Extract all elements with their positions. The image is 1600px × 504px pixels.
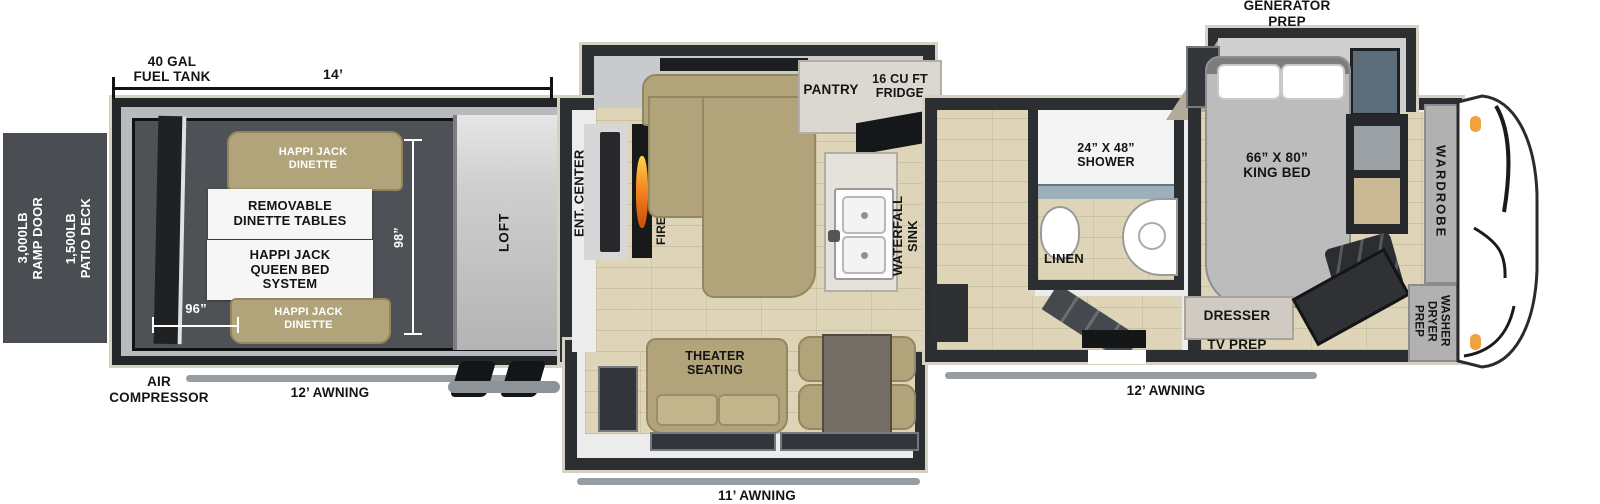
center-awning-bar: [577, 478, 920, 485]
removable-dinette-tables-label: REMOVABLE DINETTE TABLES: [208, 189, 372, 239]
shower-tray: [1038, 184, 1174, 199]
entry-door-opening: [1088, 350, 1146, 364]
dimension-line-96: [153, 325, 239, 327]
cabinet-window: [1354, 126, 1400, 170]
rv-floorplan: 3,000LB RAMP DOOR 1,500LB PATIO DECK LOF…: [0, 0, 1600, 504]
patio-deck-panel: 3,000LB RAMP DOOR 1,500LB PATIO DECK: [3, 133, 107, 343]
loft-label: LOFT: [453, 115, 555, 350]
dinette-table: [822, 334, 892, 434]
dimension-cap: [404, 333, 422, 335]
cabinet-window: [1354, 178, 1400, 224]
step-well: [1082, 330, 1146, 348]
happi-jack-dinette-top-label: HAPPI JACK DINETTE: [227, 131, 399, 187]
living-window: [780, 432, 919, 451]
dimension-cap: [112, 77, 115, 99]
bedroom-window: [1350, 48, 1400, 116]
living-window: [598, 366, 638, 432]
faucet: [828, 230, 840, 242]
garage-width-dimension: 98”: [388, 210, 410, 266]
sink-basin: [842, 236, 886, 274]
pillow: [1281, 64, 1345, 100]
flame-icon: [636, 156, 648, 228]
happi-jack-dinette-bottom-label: HAPPI JACK DINETTE: [230, 298, 387, 340]
theater-cushion: [718, 394, 780, 426]
front-awning-label: 12’ AWNING: [1098, 383, 1234, 399]
dimension-cap: [152, 317, 154, 333]
ramp-door-label: 3,000LB RAMP DOOR: [16, 197, 46, 279]
sink-basin: [842, 196, 886, 234]
living-window: [650, 432, 776, 451]
dresser-label: DRESSER: [1184, 296, 1290, 336]
front-cap: [1448, 92, 1544, 370]
dimension-cap: [550, 77, 553, 99]
bedroom-cabinet: [1346, 114, 1408, 234]
dimension-cap: [237, 317, 239, 333]
dimension-line-98: [412, 140, 414, 335]
sofa-seat: [648, 96, 710, 218]
shower-label: 24” X 48” SHOWER: [1052, 138, 1160, 172]
center-awning-label: 11’ AWNING: [688, 488, 826, 503]
kitchen-cabinet: [930, 284, 968, 342]
patio-deck-label: 1,500LB PATIO DECK: [64, 198, 94, 278]
living-window: [660, 58, 808, 71]
theater-cushion: [656, 394, 718, 426]
queen-bed-system-label: HAPPI JACK QUEEN BED SYSTEM: [207, 240, 373, 300]
generator-prep-label: GENERATOR PREP: [1222, 0, 1352, 27]
theater-seating-label: THEATER SEATING: [656, 346, 774, 380]
rear-awning-label: 12’ AWNING: [266, 385, 394, 401]
front-awning-bar: [945, 372, 1317, 379]
fuel-tank-label: 40 GAL FUEL TANK: [124, 52, 220, 86]
king-bed-label: 66” X 80” KING BED: [1226, 148, 1328, 182]
bed-width-dimension: 96”: [168, 301, 224, 318]
entertainment-center-tv: [600, 132, 620, 252]
linen-label: LINEN: [1039, 251, 1089, 267]
tv-prep-label: TV PREP: [1192, 336, 1282, 353]
pantry-label: PANTRY: [800, 81, 862, 98]
dimension-cap: [404, 139, 422, 141]
front-cap-body: [1458, 96, 1537, 367]
kitchen-sink: [834, 188, 894, 280]
axle-skirt: [448, 381, 560, 393]
clearance-light: [1470, 334, 1481, 350]
waterfall-sink-label: WATERFALL SINK: [892, 180, 920, 292]
clearance-light: [1470, 116, 1481, 132]
entertainment-center-label: ENT. CENTER: [570, 134, 590, 252]
garage-room: LOFT HAPPI JACK DINETTE REMOVABLE DINETT…: [112, 98, 580, 365]
pillow: [1217, 64, 1281, 100]
garage-length-dimension-line: [113, 87, 553, 90]
garage-length-dimension: 14’: [302, 66, 364, 83]
